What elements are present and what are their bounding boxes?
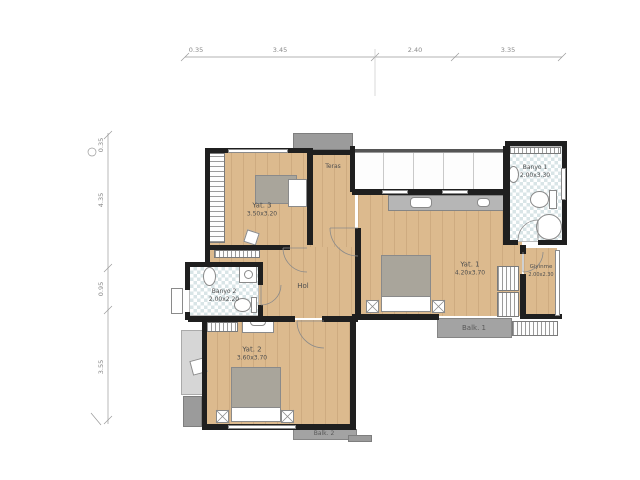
- window: [228, 425, 296, 429]
- window: [442, 190, 468, 194]
- exterior-tab-bottom: [348, 435, 372, 442]
- room-name: Banyo 1: [520, 164, 550, 172]
- counter-appliance: [477, 198, 490, 207]
- wall: [352, 314, 439, 320]
- window: [228, 149, 288, 153]
- toilet-tank: [549, 190, 557, 209]
- wall: [355, 228, 361, 316]
- toilet: [530, 191, 549, 208]
- desk: [288, 179, 307, 207]
- datum-circle: [88, 148, 96, 156]
- window: [561, 168, 566, 200]
- terrace-rail: [352, 149, 505, 152]
- wall: [185, 312, 190, 320]
- wall: [258, 305, 263, 318]
- room-label-giyinme: Giyinme 2.00x2.30: [528, 263, 553, 279]
- room-name: Hol: [297, 282, 309, 290]
- room-dims: 3.60x3.70: [237, 355, 267, 362]
- dimension-label: 3.45: [273, 46, 287, 54]
- room-dims: 3.50x3.20: [247, 211, 277, 218]
- room-name: Banyo 2: [209, 288, 239, 296]
- sink: [203, 267, 216, 286]
- wall: [258, 262, 263, 285]
- mattress: [231, 407, 281, 422]
- floor-plan-canvas: Yat. 3 3.50x3.20 Teras Yat. 1 4.20x3.70 …: [0, 0, 640, 480]
- wardrobe: [497, 266, 519, 291]
- room-label-banyo1: Banyo 1 2.00x3.30: [520, 164, 550, 180]
- room-dims: 4.20x3.70: [455, 270, 485, 277]
- radiator: [214, 250, 260, 258]
- wardrobe: [209, 153, 225, 243]
- double-bed: [231, 367, 281, 409]
- dimension-label: 3.55: [97, 360, 105, 374]
- room-dims: 2.00x2.30: [528, 272, 553, 278]
- radiator: [206, 322, 238, 332]
- window: [382, 190, 408, 194]
- wall: [185, 262, 190, 290]
- nightstand: [432, 300, 445, 313]
- room-name: Yat. 1: [455, 261, 485, 269]
- wall: [310, 150, 352, 155]
- dimension-label: 2.40: [408, 46, 422, 54]
- mattress: [381, 296, 431, 312]
- dimension-label: 0.95: [97, 282, 105, 296]
- room-name: Balk. 2: [314, 430, 335, 438]
- wall: [350, 146, 355, 192]
- dimension-tick: [181, 53, 566, 61]
- wall: [505, 141, 567, 146]
- wardrobe: [497, 292, 519, 317]
- room-label-balk2: Balk. 2: [314, 430, 335, 438]
- room-dims: 2.00x2.20: [209, 296, 239, 303]
- double-bed: [381, 255, 431, 298]
- wall: [520, 274, 526, 318]
- wall: [352, 189, 508, 195]
- radiator: [512, 321, 558, 336]
- room-label-yat1: Yat. 1 4.20x3.70: [455, 261, 485, 278]
- exterior-slab-left: [183, 396, 202, 427]
- wall: [307, 150, 313, 245]
- room-name: Giyinme: [528, 263, 553, 271]
- room-label-banyo2: Banyo 2 2.00x2.20: [209, 288, 239, 304]
- dimension-label: 0.35: [189, 46, 203, 54]
- wall: [538, 240, 567, 245]
- room-label-teras: Teras: [325, 163, 341, 171]
- nightstand: [216, 410, 229, 423]
- room-label-hol: Hol: [297, 282, 309, 290]
- north-tick: [91, 413, 101, 425]
- room-name: Yat. 2: [237, 346, 267, 354]
- wall: [185, 262, 263, 267]
- bath-shelf: [509, 147, 561, 154]
- sink: [410, 197, 432, 208]
- nightstand: [281, 410, 294, 423]
- room-floor-dressing: [524, 248, 557, 316]
- window: [555, 250, 560, 316]
- room-label-yat2: Yat. 2 3.60x3.70: [237, 346, 267, 363]
- room-name: Teras: [325, 163, 341, 171]
- room-dims: 2.00x3.30: [520, 172, 550, 179]
- wall: [350, 316, 356, 428]
- dimension-label: 0.35: [97, 138, 105, 152]
- toilet-tank: [251, 297, 257, 313]
- dimension-tick: [104, 131, 112, 424]
- room-name: Balk. 1: [462, 324, 486, 332]
- wall: [202, 322, 207, 428]
- entry-door-leaf: [171, 288, 183, 314]
- wall: [503, 194, 508, 245]
- nightstand: [366, 300, 379, 313]
- room-label-balk1: Balk. 1: [462, 324, 486, 332]
- dimension-label: 4.35: [97, 193, 105, 207]
- wall: [520, 245, 526, 254]
- terrace-floor: [353, 152, 505, 191]
- dimension-label: 3.35: [501, 46, 515, 54]
- room-name: Yat. 3: [247, 202, 277, 210]
- room-label-yat3: Yat. 3 3.50x3.20: [247, 202, 277, 219]
- washing-machine-door: [244, 270, 253, 279]
- shower: [536, 214, 562, 240]
- wall: [205, 245, 290, 250]
